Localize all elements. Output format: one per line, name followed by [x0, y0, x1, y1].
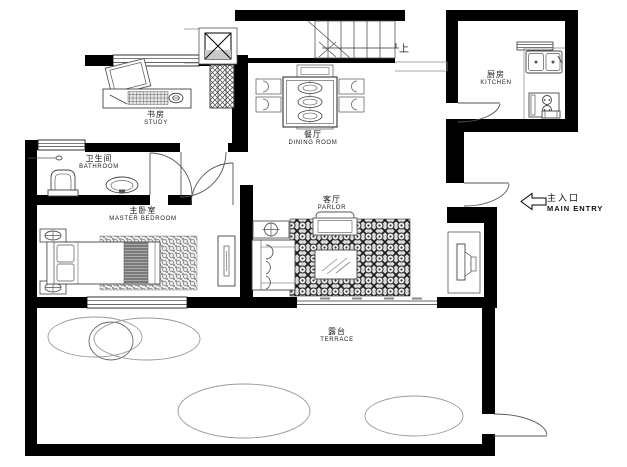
bedroom-dresser [218, 236, 235, 286]
study-label-en: STUDY [116, 120, 196, 128]
main-entry-arrow-icon [521, 194, 546, 210]
sofa [252, 240, 295, 290]
study-desk [103, 89, 191, 108]
bathroom-label: 卫生间 BATHROOM [59, 154, 139, 172]
bedroom-furniture [40, 229, 235, 294]
kitchen-window [517, 42, 553, 50]
dining-room-label-zh: 餐厅 [273, 130, 353, 140]
study-label: 书房 STUDY [116, 110, 196, 128]
terrace-label: 露台 TERRACE [297, 327, 377, 345]
master-bedroom-label-zh: 主卧室 [83, 206, 203, 216]
terrace-label-zh: 露台 [297, 327, 377, 337]
bathroom-label-zh: 卫生间 [59, 154, 139, 164]
toilet [48, 170, 78, 196]
kitchen-label-en: KITCHEN [456, 80, 536, 88]
terrace-door [494, 414, 547, 436]
bathroom-label-en: BATHROOM [59, 164, 139, 172]
parlor-label: 客厅 PARLOR [292, 195, 372, 213]
stairs-up-label: 上 [399, 40, 409, 55]
entry-door [464, 183, 509, 206]
dining-room-label: 餐厅 DINING ROOM [273, 130, 353, 148]
nightstand-top [40, 229, 66, 242]
main-entry-label-en: MAIN ENTRY [547, 204, 603, 213]
parlor-label-zh: 客厅 [292, 195, 372, 205]
dining-set [256, 65, 364, 129]
bathroom-door [150, 153, 192, 195]
bathroom-sink [106, 177, 138, 193]
staircase [308, 21, 447, 71]
terrace-sliding-door [297, 299, 437, 305]
kitchen-rack [542, 111, 560, 118]
side-table [253, 221, 289, 238]
tv-cabinet [448, 232, 480, 293]
armchair [313, 212, 357, 235]
master-bedroom-label-en: MASTER BEDROOM [83, 216, 203, 224]
parlor-label-en: PARLOR [292, 205, 372, 213]
terrace-ground-ellipses [48, 317, 463, 438]
floor-plan: 书房 STUDY 卫生间 BATHROOM 主卧室 MASTER BEDROOM… [0, 0, 627, 467]
main-entry-label-zh: 主入口 [547, 191, 603, 204]
terrace-label-en: TERRACE [297, 337, 377, 345]
study-bookshelf [210, 65, 234, 108]
kitchen-label: 厨房 KITCHEN [456, 70, 536, 88]
study-label-zh: 书房 [116, 110, 196, 120]
bed [47, 242, 160, 284]
kitchen-label-zh: 厨房 [456, 70, 536, 80]
main-entry-label: 主入口 MAIN ENTRY [547, 191, 603, 213]
dining-table [283, 77, 337, 127]
coffee-table [315, 250, 357, 279]
master-bedroom-label: 主卧室 MASTER BEDROOM [83, 206, 203, 224]
bedroom-window [87, 297, 187, 308]
dining-room-label-en: DINING ROOM [273, 140, 353, 148]
bathroom-window [38, 140, 85, 150]
parlor-furniture [252, 212, 480, 296]
